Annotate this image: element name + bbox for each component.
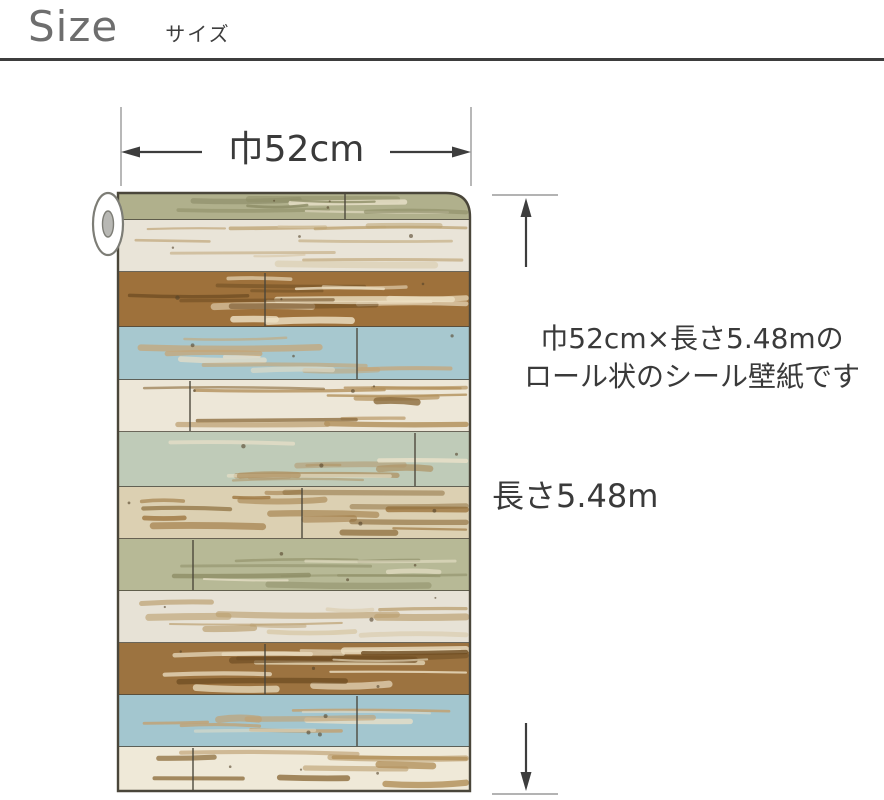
nail-speck xyxy=(191,343,195,347)
height-arrow-up-head xyxy=(521,198,532,217)
nail-speck xyxy=(329,200,331,202)
nail-speck xyxy=(273,200,275,202)
height-dimension-label: 長さ5.48m xyxy=(492,471,658,517)
nail-speck xyxy=(319,463,323,467)
nail-speck xyxy=(300,769,302,771)
roll-tube-hole xyxy=(103,211,114,237)
nail-speck xyxy=(358,522,362,526)
width-arrow-left-head xyxy=(121,147,140,158)
nail-speck xyxy=(312,667,315,670)
nail-speck xyxy=(376,772,379,775)
roll-description-line-1: 巾52cm×長さ5.48mの xyxy=(500,320,884,358)
nail-speck xyxy=(172,247,174,249)
nail-speck xyxy=(327,206,330,209)
nail-speck xyxy=(346,578,349,581)
size-info-page: Size サイズ 巾52cm 巾52cm×長さ5.48mの ロール状のシール壁紙… xyxy=(0,0,884,800)
nail-speck xyxy=(280,552,284,556)
nail-speck xyxy=(422,283,425,286)
nail-speck xyxy=(298,235,301,238)
nail-speck xyxy=(409,234,413,238)
nail-speck xyxy=(175,296,179,300)
nail-speck xyxy=(180,650,182,652)
nail-speck xyxy=(292,355,295,358)
nail-speck xyxy=(280,298,282,300)
nail-speck xyxy=(434,597,436,599)
roll-description: 巾52cm×長さ5.48mの ロール状のシール壁紙です xyxy=(500,320,884,396)
nail-speck xyxy=(377,685,380,688)
nail-speck xyxy=(307,731,311,735)
width-dimension-label: 巾52cm xyxy=(176,120,416,172)
nail-speck xyxy=(455,453,458,456)
nail-speck xyxy=(193,389,196,392)
wallpaper-roll-diagram: 巾52cm 巾52cm×長さ5.48mの ロール状のシール壁紙です 長さ5.48… xyxy=(0,61,884,800)
nail-speck xyxy=(241,444,245,448)
nail-speck xyxy=(229,765,232,768)
plank-rows xyxy=(118,193,470,791)
nail-speck xyxy=(433,509,437,513)
nail-speck xyxy=(451,334,454,337)
roll-illustration xyxy=(0,0,884,800)
nail-speck xyxy=(414,564,417,567)
width-arrow-right-head xyxy=(452,147,471,158)
nail-speck xyxy=(373,385,375,387)
nail-speck xyxy=(351,389,355,393)
height-arrow-down-head xyxy=(521,772,532,791)
nail-speck xyxy=(318,733,322,737)
nail-speck xyxy=(324,714,328,718)
nail-speck xyxy=(128,502,131,505)
nail-speck xyxy=(369,618,373,622)
nail-speck xyxy=(164,606,166,608)
roll-description-line-2: ロール状のシール壁紙です xyxy=(500,358,884,396)
